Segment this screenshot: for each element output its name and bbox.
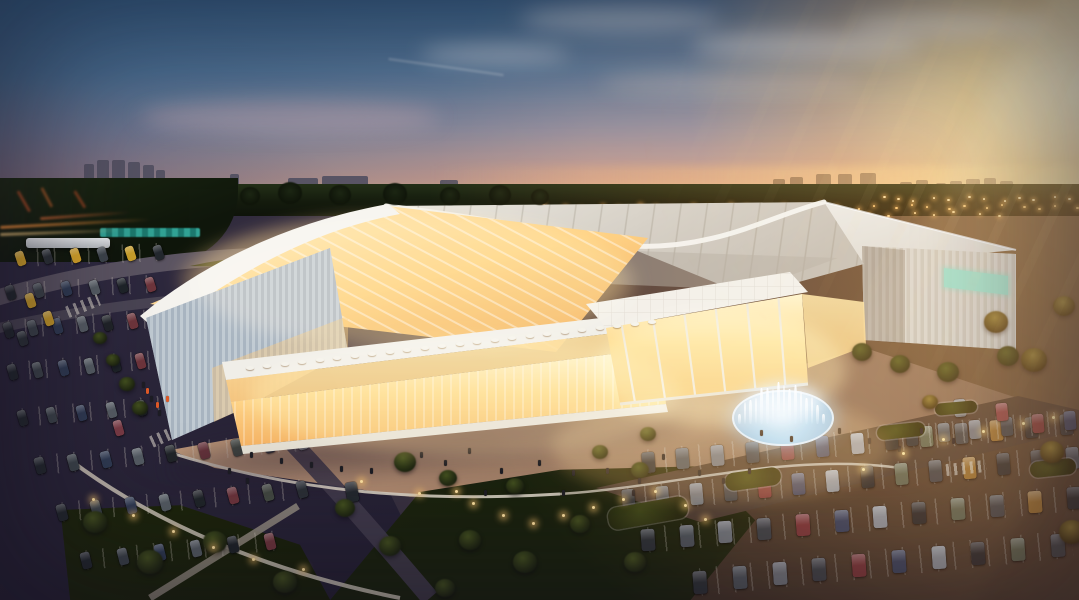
ground-light [982,430,985,433]
ground-light [622,498,625,501]
ground-light [1022,422,1025,425]
ground-light [502,514,505,517]
ground-light [704,518,707,521]
skylight-glow [195,215,635,350]
ground-light [418,492,421,495]
ground-light [472,502,475,505]
ground-light [302,568,305,571]
ground-light [592,506,595,509]
ground-light [360,480,363,483]
plaza-glow [552,392,892,502]
ground-light [942,438,945,441]
ground-light [132,514,135,517]
ground-light [212,546,215,549]
ground-light [562,514,565,517]
ground-light [1052,416,1055,419]
ground-light [902,452,905,455]
mall-aerial-rendering [0,0,1079,600]
ground-light [252,558,255,561]
ground-light [532,522,535,525]
ground-light [684,504,687,507]
ground-light [455,490,458,493]
ground-light [172,530,175,533]
ground-light [92,498,95,501]
